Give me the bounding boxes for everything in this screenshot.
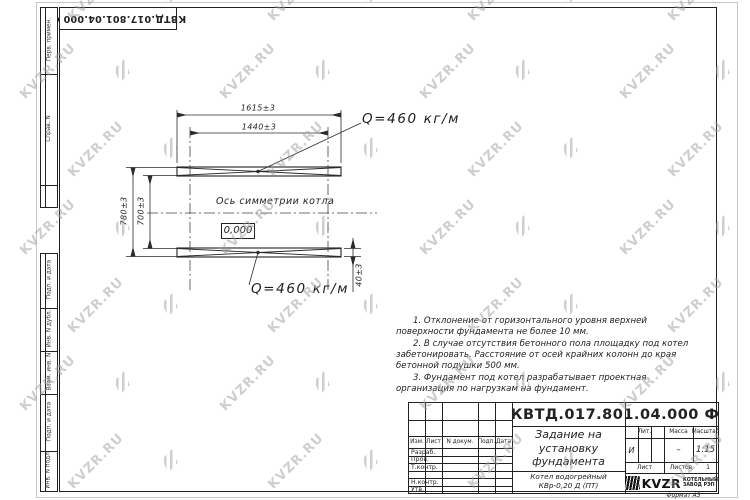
kvzr-company-line: ЗАВОД РЭП xyxy=(683,483,718,488)
tb-title-line: Задание на xyxy=(535,428,602,442)
boiler-symmetry-axis-label: Ось симметрии котла xyxy=(216,196,334,207)
tb-row-razrab: Разраб. xyxy=(411,449,441,457)
drawing-sheet: КВТД.017.801.04.000 Ф Перв. примен. Спра… xyxy=(0,0,750,500)
tb-sheet-label: Лист xyxy=(625,462,664,473)
dim-height-outer: 780±3 xyxy=(120,196,129,225)
tb-title-line: установку xyxy=(539,442,598,456)
tb-row-prov: Пров. xyxy=(411,456,441,464)
load-label-bottom: Q=460 кг/м xyxy=(251,281,349,297)
tb-company: KVZR КОТЕЛЬНЫЙ ЗАВОД РЭП xyxy=(625,473,718,493)
tb-scale-label: Масштаб xyxy=(693,426,718,438)
dim-height-inner: 700±3 xyxy=(137,196,146,225)
tb-row-nkontr: Н.контр. xyxy=(411,479,441,487)
tb-sheets-label: Листов xyxy=(664,462,698,473)
tb-title: Задание на установку фундамента xyxy=(512,426,625,471)
kvzr-logo-text: KVZR xyxy=(642,476,681,491)
tb-lit-value: И xyxy=(625,438,638,462)
tb-col-ndokum: N докум. xyxy=(442,436,478,448)
elevation-mark: 0,000 xyxy=(221,223,255,239)
tb-row-tkontr: Т.контр. xyxy=(411,464,441,472)
center-lines xyxy=(147,127,377,291)
note-1: 1. Отклонение от горизонтального уровня … xyxy=(396,316,692,339)
dim-width-inner: 1440±3 xyxy=(242,123,277,132)
format-label: Формат А3 xyxy=(650,492,717,499)
tb-mass-value: – xyxy=(664,438,693,462)
tb-mass-label: Масса xyxy=(664,426,693,438)
kvzr-company-name: КОТЕЛЬНЫЙ ЗАВОД РЭП xyxy=(683,478,718,489)
tb-col-list: Лист xyxy=(425,436,442,448)
dim-offset: 40±3 xyxy=(355,263,364,287)
tb-product: Котел водогрейный КВр-0,20 Д (ПТ) xyxy=(512,471,625,493)
dim-width-outer: 1615±3 xyxy=(241,104,276,113)
tb-row-utv: Утв. xyxy=(411,486,441,494)
note-3: 3. Фундамент под котел разрабатывает про… xyxy=(396,373,692,396)
tb-doc-number: КВТД.017.801.04.000 Ф xyxy=(512,403,718,426)
notes-block: 1. Отклонение от горизонтального уровня … xyxy=(396,316,692,395)
note-2: 2. В случае отсутствия бетонного пола пл… xyxy=(396,339,692,373)
load-label-top: Q=460 кг/м xyxy=(362,111,460,127)
tb-sheets-value: 1 xyxy=(698,462,718,473)
tb-scale-value: 1:15 xyxy=(693,438,718,462)
tb-line xyxy=(409,420,512,421)
tb-product-line: КВр-0,20 Д (ПТ) xyxy=(539,482,599,491)
kvzr-logo-icon xyxy=(625,476,640,490)
tb-title-line: фундамента xyxy=(532,455,605,469)
tb-col-podp: Подп. xyxy=(478,436,495,448)
tb-lit-label: Лит. xyxy=(625,426,664,438)
title-block: КВТД.017.801.04.000 Ф Изм. Лист N докум.… xyxy=(408,402,719,494)
tb-col-data: Дата xyxy=(495,436,512,448)
tb-col-izm: Изм. xyxy=(409,436,425,448)
